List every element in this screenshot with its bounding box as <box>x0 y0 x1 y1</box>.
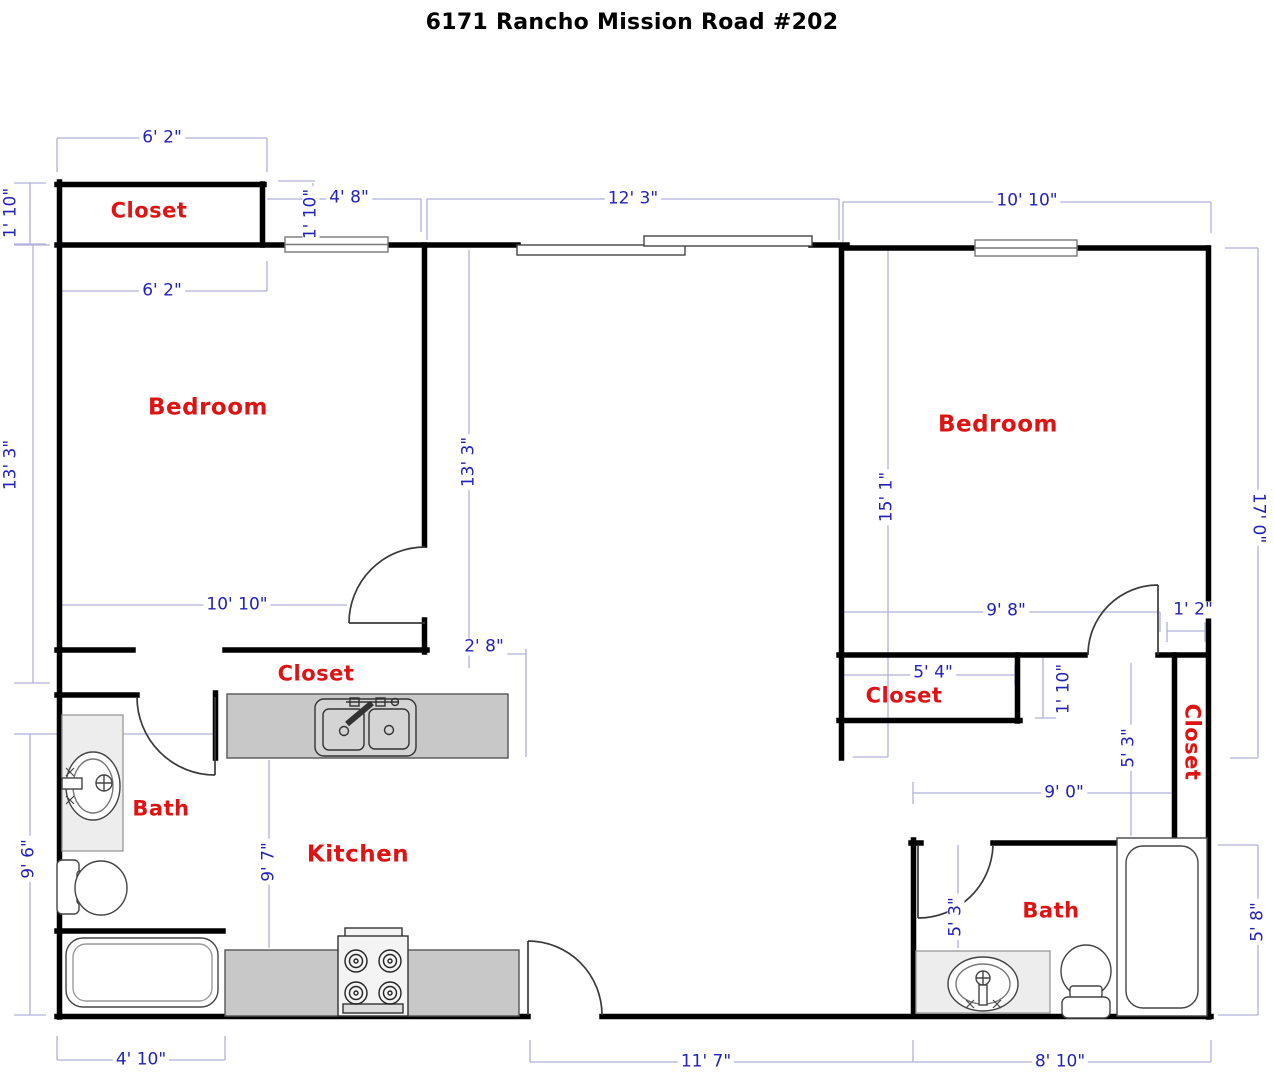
bathL-toilet <box>57 860 127 915</box>
door-bath-left <box>137 697 215 775</box>
dim-bath-right-height: 5' 8" <box>1250 899 1267 945</box>
room-label-closet-column: Closet <box>1182 704 1203 781</box>
dim-bath-right-door-depth: 5' 3" <box>948 894 965 940</box>
dim-bedroom-right-width-bottom: 9' 8" <box>983 603 1029 620</box>
sliding-door <box>517 236 812 255</box>
bathR-bathtub <box>1117 838 1207 1016</box>
dim-entry-nook-depth: 1' 10" <box>303 186 320 242</box>
dim-bath-left-width: 4' 10" <box>113 1052 169 1069</box>
window-top-left <box>285 237 388 252</box>
bathR-toilet <box>1061 945 1111 1018</box>
dim-closet-tl-width-bottom: 6' 2" <box>139 283 185 300</box>
dim-living-bottom-width: 11' 7" <box>678 1054 734 1071</box>
room-label-bedroom-right: Bedroom <box>938 414 1058 437</box>
dim-door-offset-right: 1' 2" <box>1170 602 1216 619</box>
dim-bedroom-right-height: 15' 1" <box>879 469 896 525</box>
door-bedroom-right <box>1088 585 1158 655</box>
page-title: 6171 Rancho Mission Road #202 <box>426 12 839 34</box>
dimension-lines <box>14 138 1258 1062</box>
dim-bedroom-left-height-inner: 13' 3" <box>461 434 478 490</box>
dim-bedroom-left-width: 10' 10" <box>203 597 270 614</box>
door-bedroom-left <box>349 547 425 623</box>
room-label-closet-right: Closet <box>866 686 943 707</box>
room-label-bedroom-left: Bedroom <box>148 397 268 420</box>
stove <box>338 928 408 1016</box>
dim-bath-right-width-bottom: 8' 10" <box>1032 1054 1088 1071</box>
dim-hall-gap: 2' 8" <box>461 639 507 656</box>
room-label-bath-left: Bath <box>132 799 189 820</box>
dim-kitchen-depth: 9' 7" <box>261 839 278 885</box>
dim-bedroom-right-width-top: 10' 10" <box>993 193 1060 210</box>
dim-closet-right-width: 5' 4" <box>910 665 956 682</box>
window-top-right <box>975 240 1077 256</box>
dim-bath-right-top-width: 9' 0" <box>1041 785 1087 802</box>
dim-closet-right-depth: 1' 10" <box>1056 661 1073 717</box>
room-label-closet-middle: Closet <box>278 664 355 685</box>
room-label-kitchen: Kitchen <box>307 844 409 867</box>
dim-closet-column-height: 5' 3" <box>1121 725 1138 771</box>
door-entry <box>528 941 602 1015</box>
dim-bath-left-height: 9' 6" <box>21 836 38 882</box>
dim-closet-tl-depth: 1' 10" <box>3 185 20 241</box>
dim-right-side-height: 17' 0" <box>1250 490 1267 546</box>
dim-entry-nook-width: 4' 8" <box>326 190 372 207</box>
floorplan-page: 6171 Rancho Mission Road #202 Closet Bed… <box>0 0 1274 1080</box>
dim-living-top-width: 12' 3" <box>605 191 661 208</box>
kitchen-sink <box>315 698 416 756</box>
bathR-sink <box>948 957 1018 1011</box>
room-label-bath-right: Bath <box>1022 901 1079 922</box>
floorplan-graphics <box>0 0 1274 1080</box>
bathL-bathtub <box>66 938 218 1007</box>
dim-bedroom-left-height-outer: 13' 3" <box>3 437 20 493</box>
room-label-closet-top-left: Closet <box>111 201 188 222</box>
dim-closet-tl-width-top: 6' 2" <box>139 130 185 147</box>
